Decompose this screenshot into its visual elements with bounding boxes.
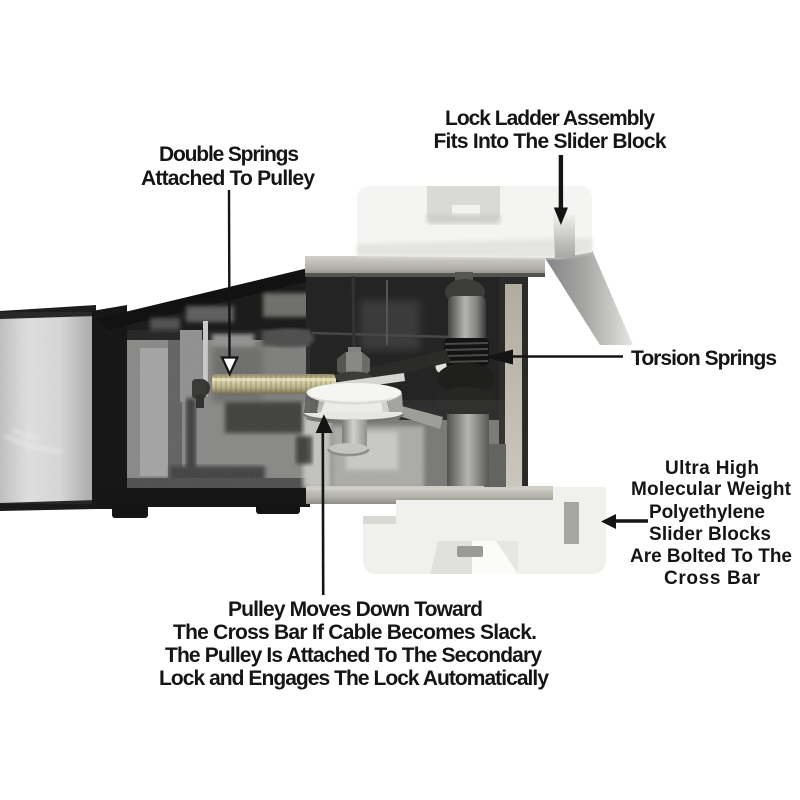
svg-text:Cross Bar: Cross Bar (664, 568, 761, 589)
svg-text:Molecular Weight: Molecular Weight (631, 479, 792, 500)
svg-text:Ultra High: Ultra High (665, 458, 759, 479)
svg-text:Pulley Moves Down Toward: Pulley Moves Down Toward (228, 598, 483, 621)
svg-text:The Pulley Is Attached To The: The Pulley Is Attached To The Secondary (165, 644, 542, 667)
svg-text:Fits Into The Slider Block: Fits Into The Slider Block (434, 130, 667, 153)
svg-text:Double Springs: Double Springs (159, 143, 299, 166)
svg-text:Polyethylene: Polyethylene (649, 502, 765, 523)
svg-text:Torsion Springs: Torsion Springs (631, 347, 777, 370)
svg-text:Slider Blocks: Slider Blocks (649, 524, 771, 545)
svg-text:Are Bolted To The: Are Bolted To The (630, 546, 792, 567)
svg-text:Lock Ladder Assembly: Lock Ladder Assembly (445, 107, 655, 130)
svg-text:Lock and Engages The Lock Auto: Lock and Engages The Lock Automatically (159, 667, 549, 690)
svg-text:Attached To Pulley: Attached To Pulley (141, 167, 315, 190)
svg-text:The Cross Bar If Cable Becomes: The Cross Bar If Cable Becomes Slack. (173, 621, 537, 644)
